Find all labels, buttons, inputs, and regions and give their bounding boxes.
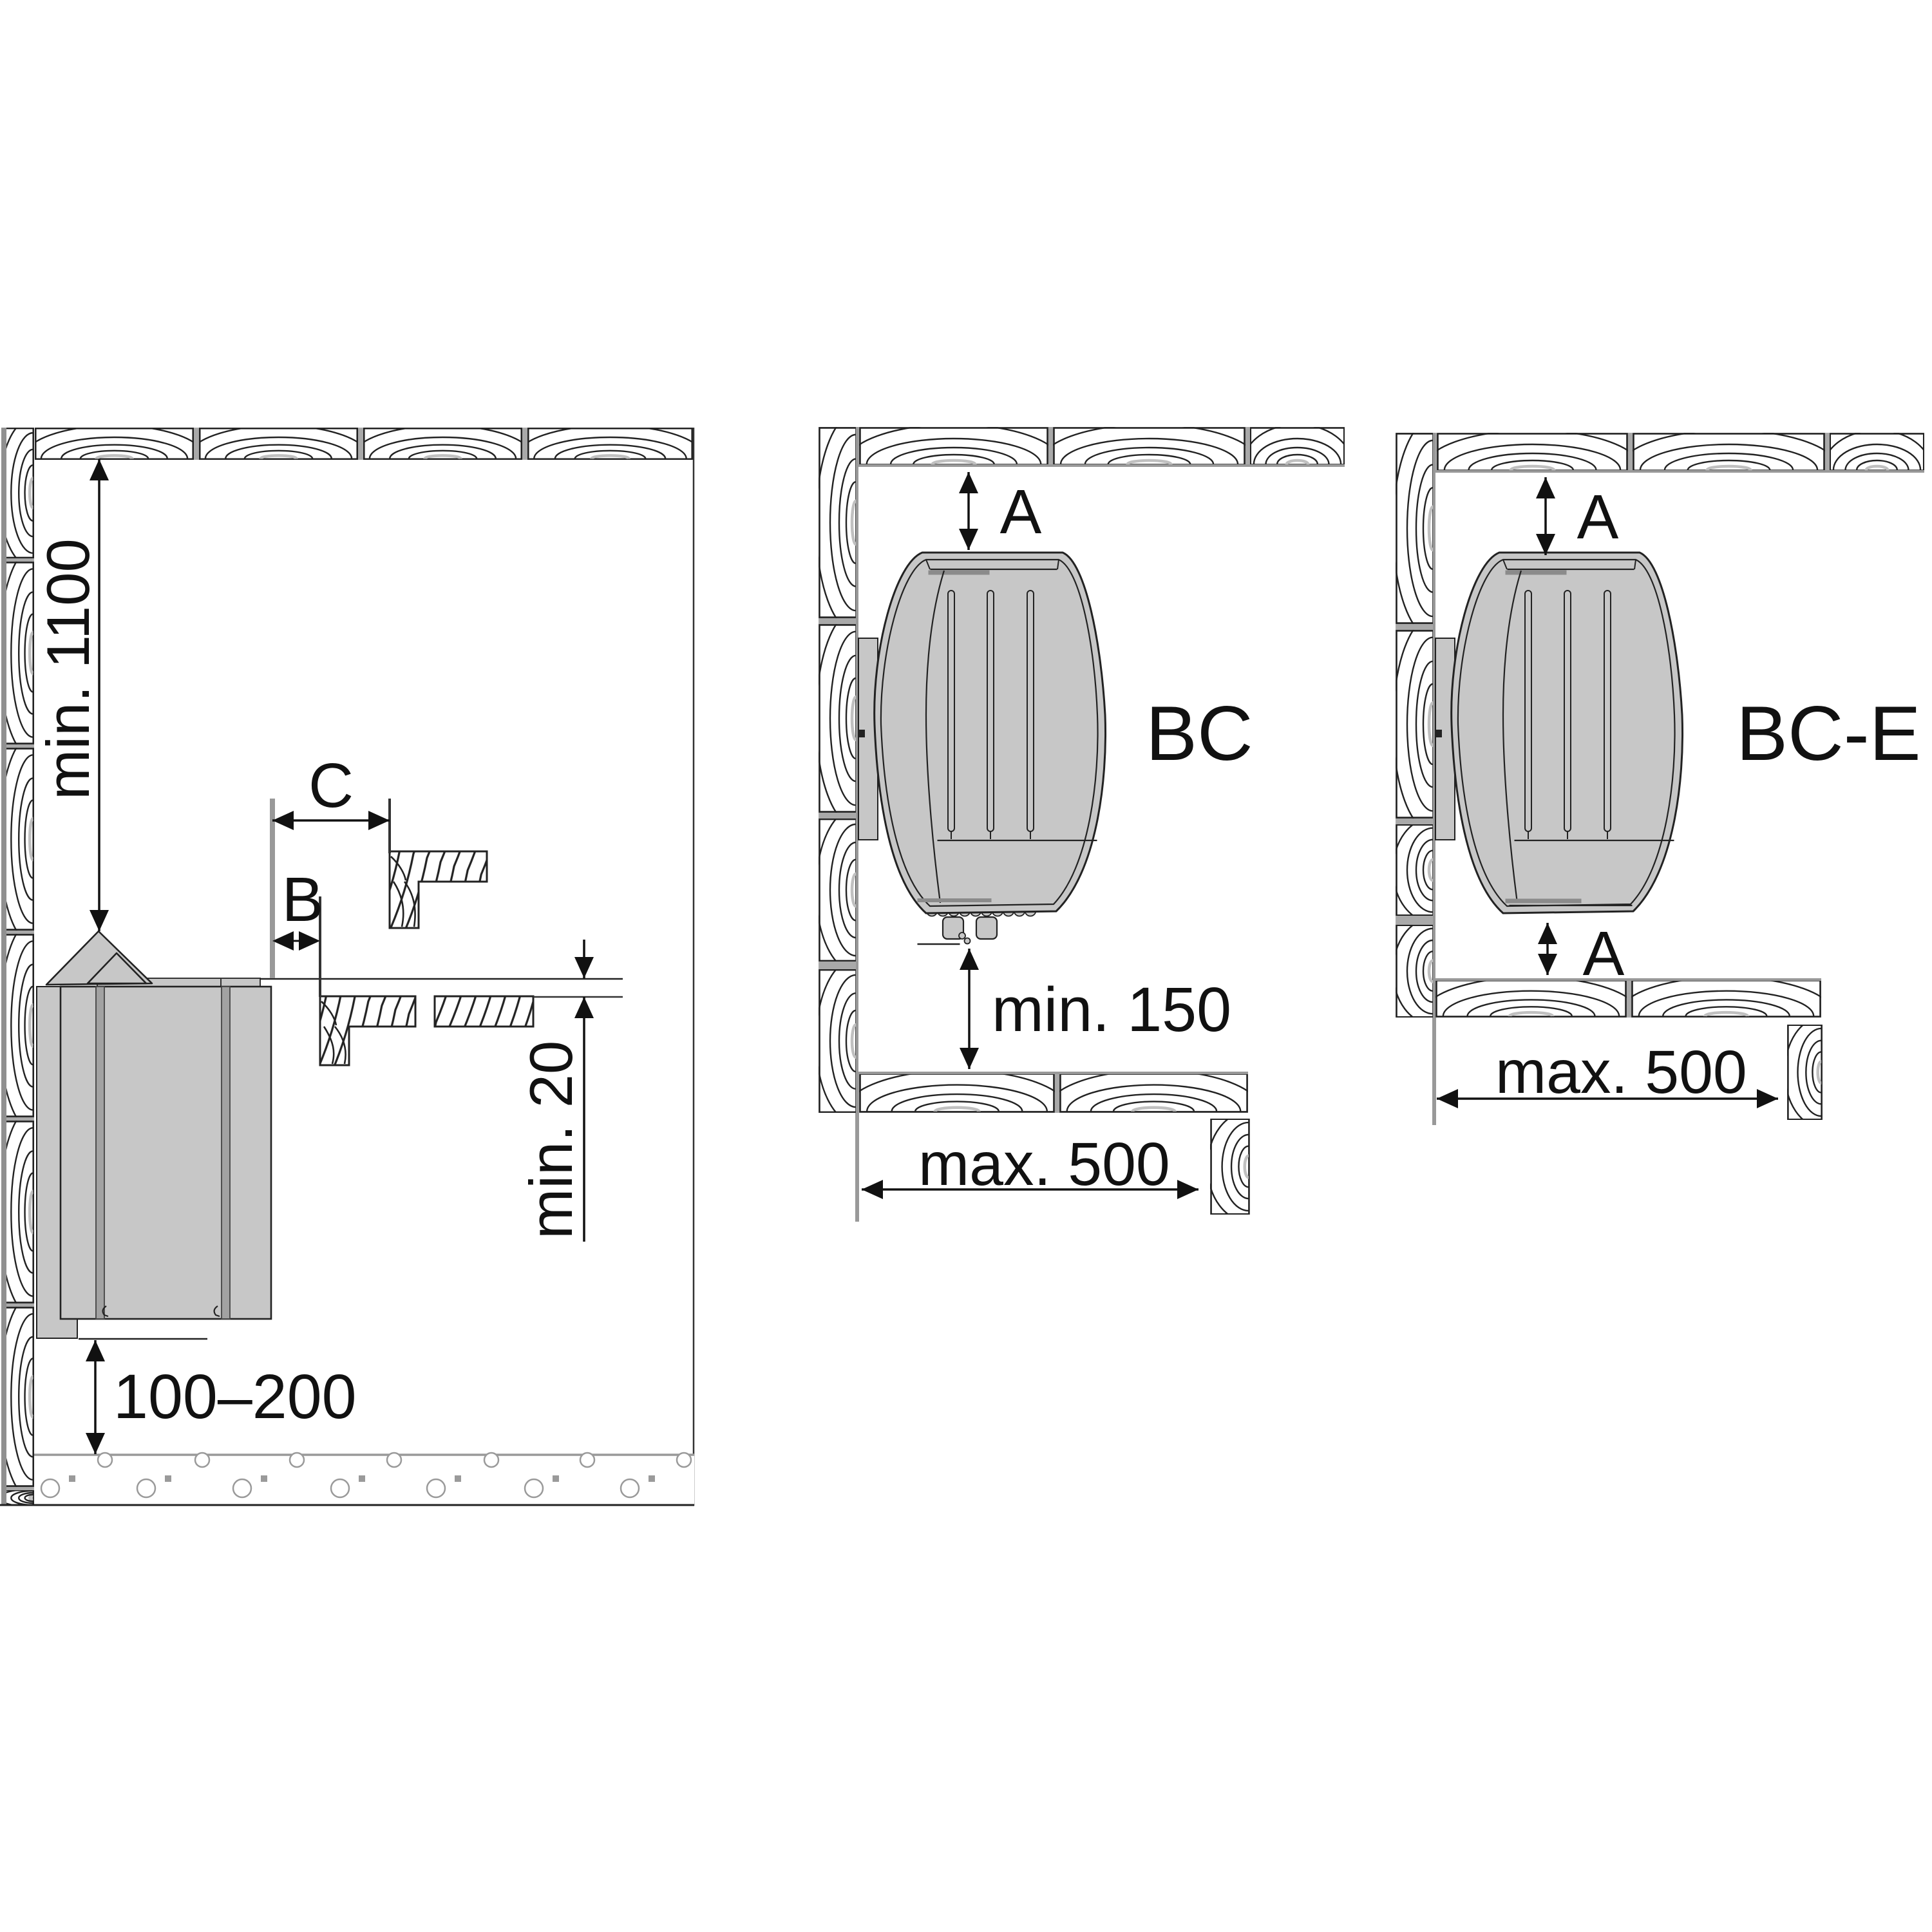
svg-text:min. 1100: min. 1100 [34, 538, 102, 800]
svg-text:BC: BC [1146, 690, 1253, 777]
svg-text:BC-E: BC-E [1736, 690, 1921, 777]
svg-text:A: A [1583, 918, 1625, 989]
svg-text:max. 500: max. 500 [918, 1130, 1170, 1198]
svg-text:min. 150: min. 150 [992, 974, 1231, 1045]
svg-text:100–200: 100–200 [113, 1361, 357, 1432]
svg-text:A: A [1000, 477, 1042, 547]
svg-text:A: A [1577, 482, 1619, 552]
svg-text:C: C [308, 750, 354, 820]
svg-text:min. 20: min. 20 [517, 1041, 585, 1239]
svg-text:max. 500: max. 500 [1495, 1038, 1747, 1106]
svg-text:B: B [282, 864, 324, 934]
